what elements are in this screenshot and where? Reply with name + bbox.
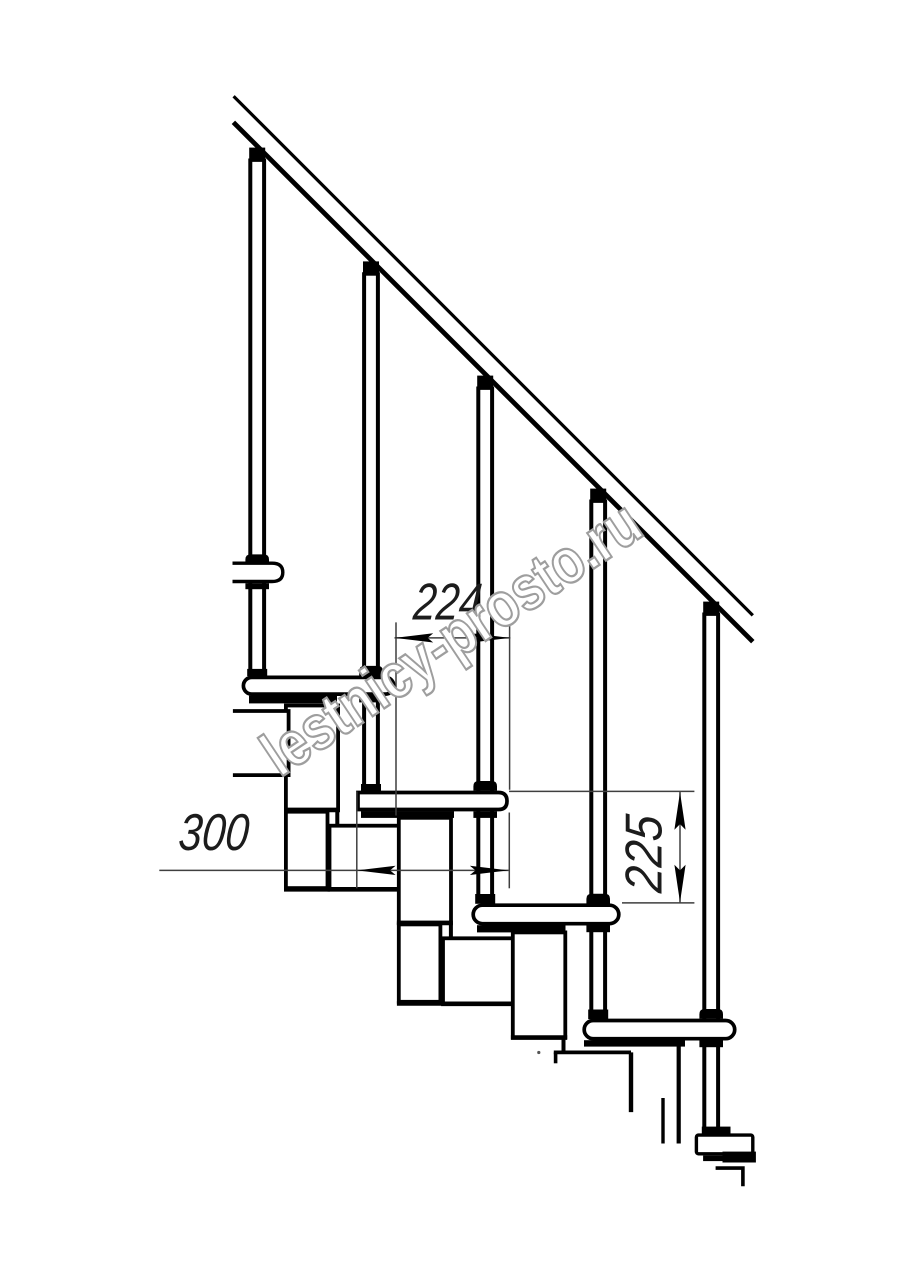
- svg-text:300: 300: [176, 804, 251, 862]
- svg-text:225: 225: [616, 812, 674, 896]
